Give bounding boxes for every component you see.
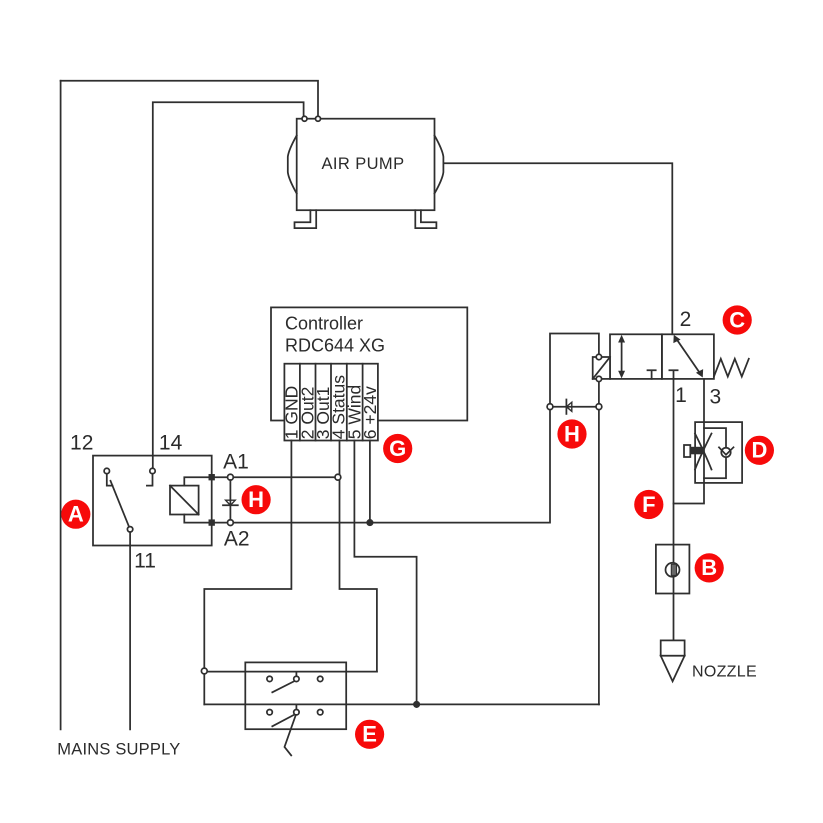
svg-text:D: D	[751, 438, 767, 463]
svg-text:RDC644 XG: RDC644 XG	[285, 336, 385, 356]
svg-text:6 +24v: 6 +24v	[360, 386, 380, 439]
svg-text:Controller: Controller	[285, 314, 363, 334]
svg-text:A1: A1	[223, 451, 249, 474]
svg-text:A: A	[68, 502, 84, 527]
svg-text:11: 11	[134, 550, 156, 573]
svg-text:H: H	[248, 487, 264, 512]
svg-text:MAINS SUPPLY: MAINS SUPPLY	[57, 740, 180, 758]
svg-text:C: C	[729, 307, 745, 332]
svg-text:G: G	[389, 436, 406, 461]
svg-text:H: H	[564, 421, 580, 446]
svg-text:2: 2	[680, 308, 692, 331]
svg-text:F: F	[642, 492, 655, 517]
svg-text:E: E	[362, 722, 377, 747]
svg-text:A2: A2	[224, 528, 250, 551]
svg-text:3: 3	[710, 385, 722, 408]
svg-text:NOZZLE: NOZZLE	[692, 664, 757, 681]
svg-text:1: 1	[675, 384, 687, 407]
svg-text:12: 12	[70, 432, 93, 455]
svg-text:B: B	[701, 555, 717, 580]
svg-text:14: 14	[159, 432, 183, 455]
svg-text:AIR PUMP: AIR PUMP	[322, 155, 405, 173]
